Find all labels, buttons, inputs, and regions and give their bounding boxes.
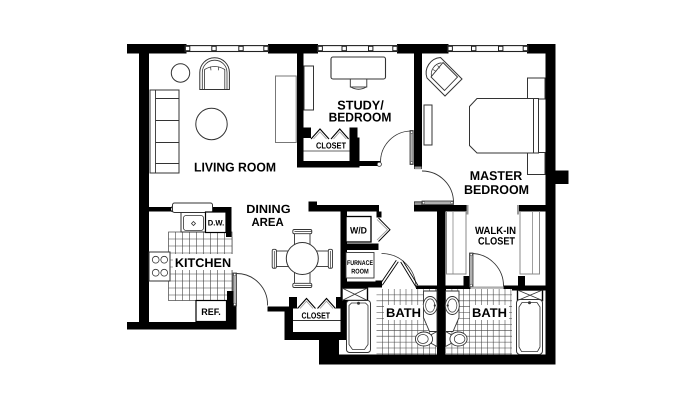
svg-text:BEDROOM: BEDROOM xyxy=(329,110,392,125)
svg-text:AREA: AREA xyxy=(251,215,284,229)
svg-text:MASTER: MASTER xyxy=(470,168,523,183)
svg-text:FURNACE: FURNACE xyxy=(347,260,373,267)
svg-text:REF.: REF. xyxy=(201,307,221,318)
svg-text:D.W.: D.W. xyxy=(208,219,225,228)
svg-text:BATH: BATH xyxy=(386,306,421,320)
svg-text:CLOSET: CLOSET xyxy=(316,141,347,151)
svg-text:ROOM: ROOM xyxy=(351,269,369,276)
svg-text:BEDROOM: BEDROOM xyxy=(464,182,529,197)
svg-text:LIVING ROOM: LIVING ROOM xyxy=(194,160,276,175)
svg-text:CLOSET: CLOSET xyxy=(478,235,516,247)
svg-text:BATH: BATH xyxy=(472,306,507,320)
svg-text:CLOSET: CLOSET xyxy=(302,311,331,321)
svg-text:KITCHEN: KITCHEN xyxy=(175,256,231,270)
svg-text:DINING: DINING xyxy=(246,202,290,216)
svg-text:W/D: W/D xyxy=(350,225,367,235)
